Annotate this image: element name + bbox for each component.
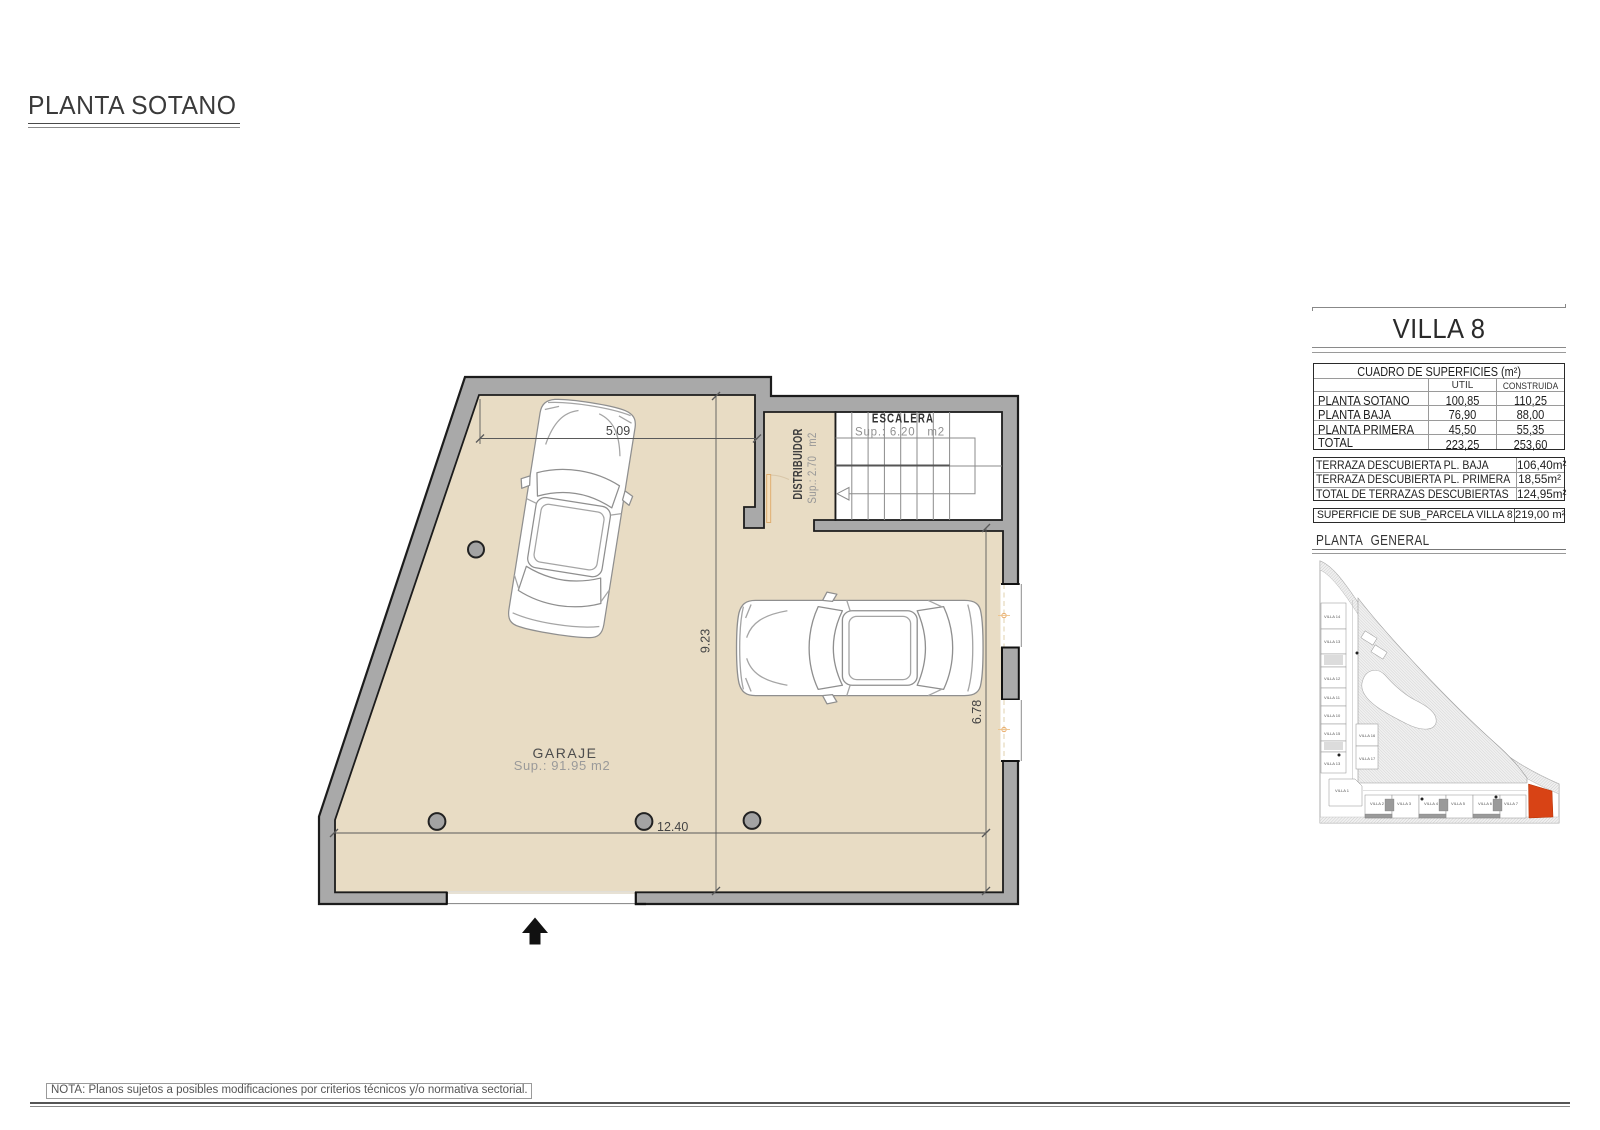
svg-text:6.78: 6.78 [970, 700, 984, 724]
svg-text:VILLA 13: VILLA 13 [1324, 639, 1341, 644]
svg-text:9.23: 9.23 [699, 629, 713, 653]
svg-text:ESCALERA: ESCALERA [872, 412, 934, 425]
svg-text:VILLA 5: VILLA 5 [1451, 801, 1466, 806]
svg-text:DISTRIBUIDOR: DISTRIBUIDOR [792, 428, 806, 499]
svg-text:5.09: 5.09 [606, 424, 630, 438]
svg-text:VILLA 4: VILLA 4 [1424, 801, 1439, 806]
svg-text:VILLA 14: VILLA 14 [1324, 614, 1341, 619]
svg-text:VILLA 15: VILLA 15 [1324, 731, 1341, 736]
svg-text:VILLA 10: VILLA 10 [1324, 713, 1341, 718]
svg-text:VILLA 7: VILLA 7 [1504, 801, 1519, 806]
svg-text:VILLA 6: VILLA 6 [1478, 801, 1493, 806]
svg-text:VILLA 1: VILLA 1 [1335, 788, 1350, 793]
svg-text:VILLA 13: VILLA 13 [1324, 761, 1341, 766]
svg-text:VILLA 11: VILLA 11 [1324, 695, 1341, 700]
svg-text:VILLA 2: VILLA 2 [1370, 801, 1385, 806]
svg-text:VILLA 16: VILLA 16 [1359, 733, 1376, 738]
svg-text:Sup.: 91.95 m2: Sup.: 91.95 m2 [514, 758, 611, 773]
svg-text:VILLA 12: VILLA 12 [1324, 676, 1341, 681]
svg-text:VILLA 3: VILLA 3 [1397, 801, 1412, 806]
svg-text:VILLA 17: VILLA 17 [1359, 756, 1376, 761]
svg-text:Sup.: 6.20 m2: Sup.: 6.20 m2 [855, 427, 945, 439]
svg-text:Sup.: 2.70 m2: Sup.: 2.70 m2 [806, 432, 819, 503]
svg-text:12.40: 12.40 [657, 820, 688, 834]
